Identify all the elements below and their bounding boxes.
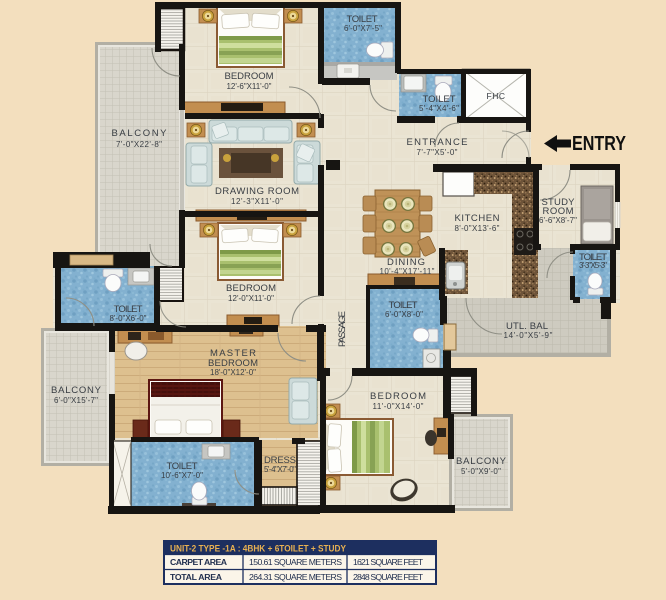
svg-text:5'-4"X4'-6": 5'-4"X4'-6" <box>419 104 459 113</box>
svg-text:BEDROOM: BEDROOM <box>226 283 276 294</box>
svg-text:ENTRY: ENTRY <box>572 133 627 155</box>
svg-text:264.31 SQUARE METERS: 264.31 SQUARE METERS <box>249 572 342 582</box>
svg-text:PASSAGE: PASSAGE <box>337 311 348 347</box>
svg-text:10'-4"X17'-11": 10'-4"X17'-11" <box>380 267 435 276</box>
svg-text:7'-7"X5'-0": 7'-7"X5'-0" <box>417 148 458 157</box>
svg-text:12'-3"X11'-0": 12'-3"X11'-0" <box>231 197 283 206</box>
svg-text:6'-6"X8'-7": 6'-6"X8'-7" <box>539 216 577 225</box>
svg-text:2848 SQUARE FEET: 2848 SQUARE FEET <box>353 572 424 582</box>
svg-text:1621 SQUARE FEET: 1621 SQUARE FEET <box>353 557 424 567</box>
svg-text:CARPET AREA: CARPET AREA <box>170 557 228 567</box>
svg-text:7'-0"X22'-8": 7'-0"X22'-8" <box>116 140 162 149</box>
svg-text:FHC: FHC <box>487 91 506 101</box>
svg-text:11'-0"X14'-0": 11'-0"X14'-0" <box>373 402 424 411</box>
svg-text:TOTAL AREA: TOTAL AREA <box>170 572 223 582</box>
svg-text:12'-0"X11'-0": 12'-0"X11'-0" <box>228 294 274 303</box>
svg-text:12'-6"X11'-0": 12'-6"X11'-0" <box>227 82 272 91</box>
svg-text:6'-0"X8'-0": 6'-0"X8'-0" <box>385 310 423 319</box>
svg-text:5'-0"X9'-0": 5'-0"X9'-0" <box>461 467 501 476</box>
svg-text:5'-4"X7'-0": 5'-4"X7'-0" <box>264 465 296 474</box>
svg-text:8'-0"X6'-0": 8'-0"X6'-0" <box>110 314 147 323</box>
svg-text:150.61 SQUARE METERS: 150.61 SQUARE METERS <box>249 557 342 567</box>
svg-text:BALCONY: BALCONY <box>456 456 507 467</box>
svg-text:6'-0"X7'-5": 6'-0"X7'-5" <box>344 24 382 33</box>
svg-text:ENTRANCE: ENTRANCE <box>407 137 468 148</box>
svg-text:BEDROOM: BEDROOM <box>370 391 426 402</box>
svg-text:8'-0"X13'-6": 8'-0"X13'-6" <box>455 224 500 233</box>
svg-text:18'-0"X12'-0": 18'-0"X12'-0" <box>210 368 256 377</box>
svg-text:BEDROOM: BEDROOM <box>225 71 274 82</box>
svg-text:10'-6"X7'-0": 10'-6"X7'-0" <box>161 471 203 480</box>
svg-text:3'-3"X5'-3": 3'-3"X5'-3" <box>579 261 607 270</box>
svg-text:14'-0"X5'-9": 14'-0"X5'-9" <box>504 331 553 340</box>
svg-text:KITCHEN: KITCHEN <box>455 213 500 224</box>
svg-text:6'-0"X15'-7": 6'-0"X15'-7" <box>54 396 98 405</box>
svg-text:DRAWING ROOM: DRAWING ROOM <box>215 186 299 197</box>
svg-text:BALCONY: BALCONY <box>51 385 102 396</box>
svg-text:UNIT-2 TYPE -1A : 4BHK + 6TOIL: UNIT-2 TYPE -1A : 4BHK + 6TOILET + STUDY <box>170 543 346 553</box>
